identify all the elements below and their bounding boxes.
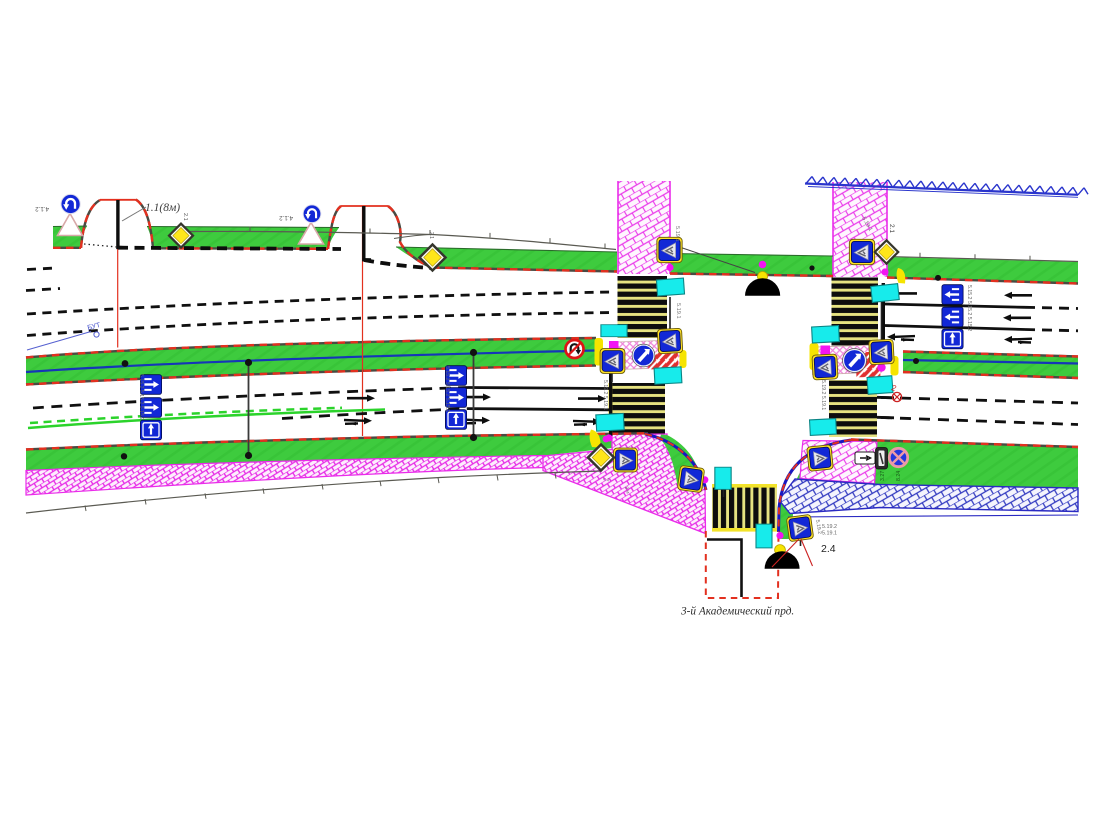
svg-text:2.1: 2.1: [182, 213, 188, 221]
svg-text:5.19.2 5.19.1: 5.19.2 5.19.1: [820, 380, 826, 410]
svg-text:5.19.2 5.19.1: 5.19.2 5.19.1: [602, 380, 608, 410]
svg-text:3.27: 3.27: [880, 471, 886, 481]
svg-text:5.19.1: 5.19.1: [822, 531, 837, 537]
svg-text:5.19.1: 5.19.1: [675, 303, 681, 319]
svg-text:2.4: 2.4: [821, 543, 836, 555]
svg-text:8.24: 8.24: [896, 471, 902, 481]
svg-text:4.1.2: 4.1.2: [279, 214, 293, 221]
svg-text:3-й Академический прд.: 3-й Академический прд.: [680, 606, 794, 618]
svg-text:4.1.2: 4.1.2: [35, 205, 49, 212]
svg-text:5.15.2 5.15.2 5.15.2: 5.15.2 5.15.2 5.15.2: [966, 285, 972, 331]
svg-text:1.1(8м): 1.1(8м): [145, 202, 180, 214]
svg-text:5.15.2 5.15.2 5.15.2: 5.15.2 5.15.2 5.15.2: [138, 374, 144, 420]
svg-text:5.19.1: 5.19.1: [674, 226, 680, 242]
svg-text:2.1: 2.1: [888, 224, 895, 233]
svg-text:5.19.2: 5.19.2: [822, 524, 837, 530]
svg-text:5.15.2 5.15.2 5.15.2: 5.15.2 5.15.2 5.15.2: [444, 366, 450, 412]
svg-text:2.1: 2.1: [428, 232, 434, 239]
